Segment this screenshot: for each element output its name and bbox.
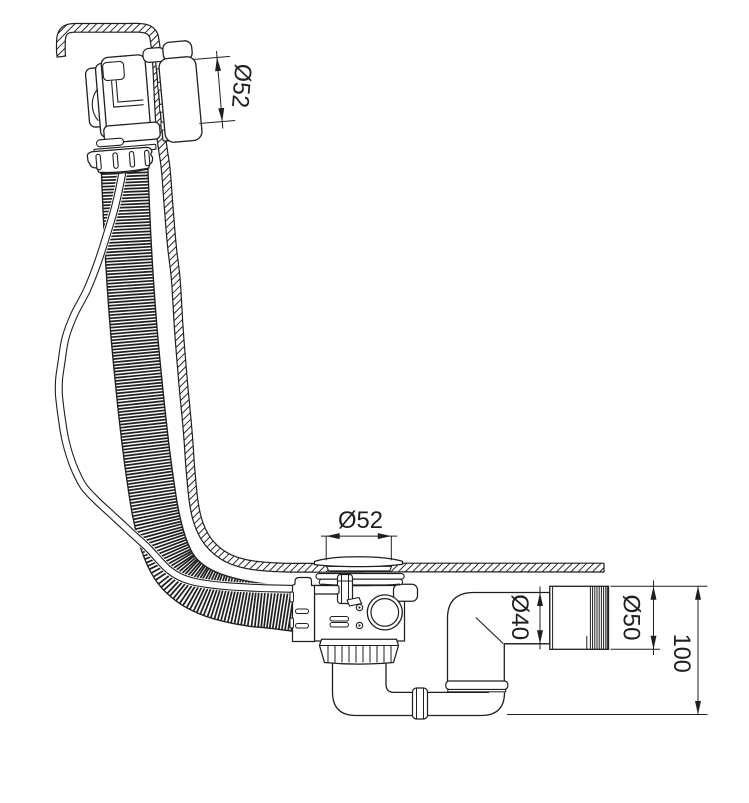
svg-text:100: 100	[668, 634, 695, 673]
svg-text:Ø50: Ø50	[618, 595, 645, 641]
svg-text:Ø40: Ø40	[506, 594, 533, 640]
svg-text:Ø52: Ø52	[226, 63, 257, 109]
svg-text:Ø52: Ø52	[338, 507, 383, 534]
